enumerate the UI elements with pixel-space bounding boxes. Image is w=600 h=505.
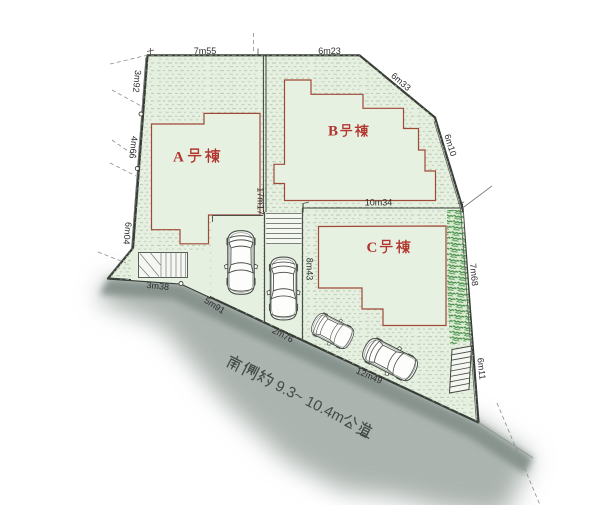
svg-text:B: B <box>328 124 338 140</box>
svg-text:C: C <box>367 240 378 256</box>
svg-text:A: A <box>173 150 184 166</box>
svg-text:6m23: 6m23 <box>318 46 341 56</box>
svg-text:7m55: 7m55 <box>194 46 217 56</box>
svg-text:8m43: 8m43 <box>305 258 315 281</box>
svg-text:17m17: 17m17 <box>256 187 266 215</box>
svg-text:10m34: 10m34 <box>365 198 393 208</box>
